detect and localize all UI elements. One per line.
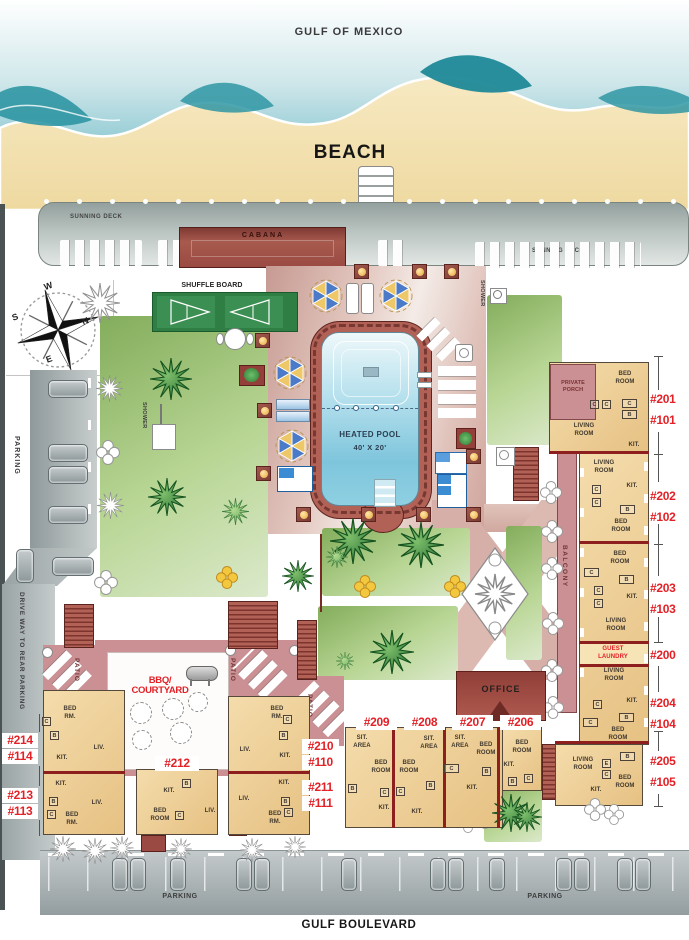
room-label: KIT. xyxy=(618,442,650,450)
lamp-post xyxy=(466,507,481,522)
room-label: BEDRM. xyxy=(53,812,91,827)
room-label: KIT. xyxy=(368,805,400,813)
gulf-boulevard-label: GULF BOULEVARD xyxy=(279,919,439,931)
dimension-line xyxy=(658,666,659,692)
palm-tree xyxy=(370,630,414,674)
parked-car xyxy=(617,858,633,891)
unit-number: #213 xyxy=(2,788,38,803)
shuffle-board-label: SHUFFLE BOARD xyxy=(162,282,262,291)
tree-outline xyxy=(50,836,76,862)
dimension-line xyxy=(658,617,659,643)
unit-number: #209 xyxy=(356,715,397,730)
bbq-courtyard-label: BBQ/COURTYARD xyxy=(110,676,210,697)
dimension-tick xyxy=(654,356,663,357)
south-parking-east-label: PARKING xyxy=(515,893,575,900)
table-chair xyxy=(246,333,254,345)
bath: B xyxy=(482,767,491,776)
lamp-post xyxy=(412,264,427,279)
unit-divider xyxy=(579,664,649,667)
lamp-post xyxy=(255,333,270,348)
closet: C xyxy=(594,599,603,608)
flower-cluster xyxy=(584,798,606,821)
unit-number: #201 xyxy=(650,393,676,406)
courtyard-table xyxy=(162,698,184,720)
tree-outline xyxy=(97,492,124,519)
room-label: BEDRM. xyxy=(256,811,294,826)
palm-tree xyxy=(512,802,542,832)
lamp-post xyxy=(257,403,272,418)
shuffle-court-right xyxy=(225,296,283,328)
parked-car xyxy=(341,858,357,891)
lounge-chair xyxy=(346,283,359,314)
unit-number: #212 xyxy=(155,756,199,771)
palm-tree xyxy=(148,478,186,516)
room-label: LIV. xyxy=(229,747,261,755)
lamp-post xyxy=(354,264,369,279)
yellow-flowers xyxy=(444,575,466,598)
bath: B xyxy=(619,713,634,722)
diamond-planter xyxy=(460,546,530,642)
entry-canopy xyxy=(141,835,166,852)
room-label: KIT. xyxy=(46,755,78,763)
closet: C xyxy=(380,788,389,797)
unit-number: #206 xyxy=(500,715,541,730)
lamp-post xyxy=(466,449,481,464)
office-label: OFFICE xyxy=(456,684,546,695)
parked-car xyxy=(430,858,446,891)
bath: B xyxy=(426,781,435,790)
closet: C xyxy=(175,811,184,820)
palm-tree xyxy=(150,358,192,400)
driveway-label: DRIVE WAY TO REAR PARKING xyxy=(18,592,25,710)
blue-lounger-pair xyxy=(435,452,467,474)
closet: C xyxy=(283,715,292,724)
room-label: KIT. xyxy=(456,785,488,793)
deck-lounge-chairs xyxy=(378,240,406,266)
palm-tree xyxy=(398,522,444,568)
landing-circle xyxy=(499,450,509,460)
balcony-label: BALCONY xyxy=(561,545,568,588)
room-label: BEDROOM xyxy=(497,740,547,755)
room-label: LIV. xyxy=(81,800,113,808)
fence xyxy=(320,534,322,612)
bath: B xyxy=(348,784,357,793)
closet: C xyxy=(593,700,602,709)
closet: C xyxy=(592,485,601,494)
heated-pool-label: HEATED POOL xyxy=(330,430,410,440)
yellow-flowers xyxy=(216,566,238,589)
dimension-line xyxy=(658,524,659,576)
cabana-label: CABANA xyxy=(219,232,307,239)
tree-outline xyxy=(96,375,123,402)
room-label: KIT. xyxy=(494,762,524,770)
bath: B xyxy=(620,752,635,761)
parked-car xyxy=(48,380,88,398)
bath: B xyxy=(182,779,191,788)
room-label: LIV. xyxy=(228,796,260,804)
flower-cluster xyxy=(604,804,624,825)
room-label: LIVINGROOM xyxy=(590,618,642,633)
deck-railing-posts xyxy=(44,199,49,204)
flower-cluster xyxy=(94,570,118,595)
rope-float xyxy=(353,405,359,411)
closet: C xyxy=(594,586,603,595)
closet: C xyxy=(396,787,405,796)
stairs xyxy=(297,620,317,680)
closet: C xyxy=(444,764,459,773)
room-label: KIT. xyxy=(616,483,648,491)
sunning-deck-left-label: SUNNING DECK xyxy=(70,214,122,220)
parked-car xyxy=(16,549,34,583)
gulf-of-mexico-label: GULF OF MEXICO xyxy=(234,26,464,38)
lamp-post xyxy=(296,507,311,522)
bush xyxy=(326,546,348,568)
parked-car xyxy=(489,858,505,891)
parking-edge-dashes xyxy=(48,853,678,856)
room-label: KIT. xyxy=(268,780,300,788)
dimension-line xyxy=(39,766,40,786)
unit-divider xyxy=(579,541,649,544)
unit-number: #210 xyxy=(302,739,339,754)
south-parking-west-label: PARKING xyxy=(150,893,210,900)
bath: B xyxy=(620,505,635,514)
west-parking-label: PARKING xyxy=(13,436,20,475)
planter-box xyxy=(456,428,476,449)
blue-lounger-pair xyxy=(437,474,467,508)
room-label: KIT. xyxy=(153,788,185,796)
closet: E xyxy=(602,759,611,768)
flower-cluster xyxy=(96,440,120,465)
private-porch-label: PRIVATEPORCH xyxy=(551,380,595,394)
unit-number: #214 xyxy=(2,733,38,748)
pool-size-label: 40' X 20' xyxy=(330,443,410,452)
unit-number: #105 xyxy=(650,776,676,789)
tree-outline xyxy=(80,283,120,323)
room-label: KIT. xyxy=(45,781,77,789)
rope-float xyxy=(373,405,379,411)
guest-laundry-label: GUESTLAUNDRY xyxy=(582,646,644,661)
shower-west-label: SHOWER xyxy=(141,402,147,429)
dimension-tick xyxy=(654,544,663,545)
deck-lounge-chairs xyxy=(60,240,142,266)
room-label: LIV. xyxy=(83,745,115,753)
beach-umbrella xyxy=(273,356,307,390)
room-label: SIT.AREA xyxy=(343,735,381,750)
palm-tree xyxy=(282,560,314,592)
dimension-line xyxy=(658,731,659,751)
parked-car xyxy=(52,557,94,576)
courtyard-table xyxy=(170,722,192,744)
pool-ladder-east-rail xyxy=(417,372,432,378)
dimension-tick xyxy=(654,454,663,455)
closet: C xyxy=(592,498,601,507)
rope-float xyxy=(393,405,399,411)
blue-lounger-pair xyxy=(277,466,313,492)
pool-ladder-east-rail xyxy=(417,382,432,388)
room-label: BEDRM. xyxy=(51,706,89,721)
closet: C xyxy=(583,718,598,727)
patio-middle-label: PATIO xyxy=(229,658,236,682)
unit-divider xyxy=(392,727,395,828)
shuffle-court-left xyxy=(157,296,215,328)
bath: B xyxy=(508,777,517,786)
dimension-line xyxy=(658,794,659,806)
flower-cluster xyxy=(540,481,562,504)
pool-drain xyxy=(363,367,379,377)
flower-cluster xyxy=(541,557,563,580)
planter-box xyxy=(239,365,265,386)
closet: C xyxy=(590,400,599,409)
unit-number: #202 xyxy=(650,490,676,503)
blue-lounger xyxy=(276,411,310,422)
lamp-post xyxy=(416,507,431,522)
window-ticks xyxy=(580,468,584,698)
dimension-line xyxy=(658,432,659,482)
parked-car xyxy=(574,858,590,891)
side-table-top xyxy=(459,348,469,358)
room-label: BEDROOM xyxy=(594,551,646,566)
parked-car xyxy=(48,444,88,462)
patio-west-label: PATIO xyxy=(73,658,80,682)
parked-car xyxy=(170,858,186,891)
bath: B xyxy=(279,731,288,740)
unit-number: #110 xyxy=(302,755,339,770)
room-label: KIT. xyxy=(580,787,612,795)
courtyard-table xyxy=(130,702,152,724)
dimension-tick xyxy=(654,642,663,643)
tree-outline xyxy=(110,836,134,860)
parked-car xyxy=(254,858,270,891)
bath: B xyxy=(619,575,634,584)
bath: B xyxy=(281,797,290,806)
room-label: LIV. xyxy=(194,808,226,816)
unit-number: #114 xyxy=(2,749,38,764)
dimension-line xyxy=(39,714,40,732)
stairs xyxy=(64,604,94,648)
shrub xyxy=(459,432,472,445)
unit-divider xyxy=(43,771,125,774)
room-label: LIVINGROOM xyxy=(588,668,640,683)
unit-number: #200 xyxy=(650,649,676,662)
stairs xyxy=(228,601,278,649)
rope-float xyxy=(334,405,340,411)
room-label: KIT. xyxy=(616,698,648,706)
unit-212-building xyxy=(136,769,218,835)
unit-number: #102 xyxy=(650,511,676,524)
unit-number: #111 xyxy=(302,796,339,811)
shower-head xyxy=(493,290,502,299)
unit-number: #101 xyxy=(650,414,676,427)
parked-car xyxy=(635,858,651,891)
unit-number: #203 xyxy=(650,582,676,595)
stairs xyxy=(513,447,539,501)
shower-east-label: SHOWER xyxy=(479,280,485,307)
unit-number: #113 xyxy=(2,804,38,819)
tree-outline xyxy=(284,836,306,858)
lounge-chair xyxy=(361,283,374,314)
tree-outline xyxy=(170,838,192,860)
shower-pad-west xyxy=(152,424,176,450)
bath: B xyxy=(49,797,58,806)
unit-divider xyxy=(228,771,310,774)
unit-number: #204 xyxy=(650,697,676,710)
bath: B xyxy=(622,410,637,419)
tree-outline xyxy=(82,838,108,864)
resort-site-map: GULF OF MEXICO BEACH SUNNING DECK SUNNIN… xyxy=(0,0,689,940)
closet: C xyxy=(524,774,533,783)
closet: C xyxy=(602,400,611,409)
blue-lounger xyxy=(276,399,310,410)
parked-car xyxy=(112,858,128,891)
closet: C xyxy=(584,568,599,577)
room-label: KIT. xyxy=(401,809,433,817)
closet: C xyxy=(622,399,637,408)
unit-number: #104 xyxy=(650,718,676,731)
unit-divider xyxy=(579,641,649,644)
parking-stall-dashes xyxy=(88,378,91,540)
cabana-roof-ridge xyxy=(191,240,334,257)
unit-number: #211 xyxy=(302,780,339,795)
round-table xyxy=(224,328,246,350)
shrub xyxy=(244,368,259,382)
bush xyxy=(336,652,354,670)
courtyard-table xyxy=(132,730,152,750)
room-label: BEDROOM xyxy=(388,760,430,775)
flower-cluster xyxy=(541,520,563,543)
parked-car xyxy=(48,506,88,524)
pool-ladder-south xyxy=(374,479,396,507)
unit-number: #103 xyxy=(650,603,676,616)
bush xyxy=(222,498,249,525)
table-chair xyxy=(216,333,224,345)
unit-number: #207 xyxy=(452,715,493,730)
beach-umbrella xyxy=(275,429,309,463)
beach-label: BEACH xyxy=(290,142,410,164)
dimension-line xyxy=(658,356,659,390)
white-lounger-stack xyxy=(438,366,476,418)
beach-umbrella xyxy=(309,279,343,313)
yellow-flowers xyxy=(354,575,376,598)
closet: C xyxy=(42,717,51,726)
tree-outline xyxy=(240,838,264,862)
room-label: KIT. xyxy=(616,594,648,602)
parked-car xyxy=(130,858,146,891)
lamp-post xyxy=(444,264,459,279)
dimension-line xyxy=(39,820,40,836)
bath: B xyxy=(50,731,59,740)
unit-divider xyxy=(549,451,649,454)
dimension-tick xyxy=(654,806,663,807)
dimension-tick xyxy=(654,731,663,732)
flower-cluster xyxy=(542,612,564,635)
room-label: LIVINGROOM xyxy=(578,460,630,475)
room-label: BEDROOM xyxy=(592,727,644,742)
room-label: BEDROOM xyxy=(600,371,650,386)
room-label: BEDROOM xyxy=(595,519,647,534)
deck-lounge-chairs xyxy=(475,242,641,268)
room-label: LIVINGROOM xyxy=(558,423,610,438)
parked-car xyxy=(236,858,252,891)
patio-post xyxy=(42,647,53,658)
parked-car xyxy=(448,858,464,891)
unit-number: #208 xyxy=(404,715,445,730)
lamp-post xyxy=(256,466,271,481)
parked-car xyxy=(556,858,572,891)
unit-number: #205 xyxy=(650,755,676,768)
parked-car xyxy=(48,466,88,484)
room-label: KIT. xyxy=(269,753,301,761)
beach-umbrella xyxy=(379,279,413,313)
